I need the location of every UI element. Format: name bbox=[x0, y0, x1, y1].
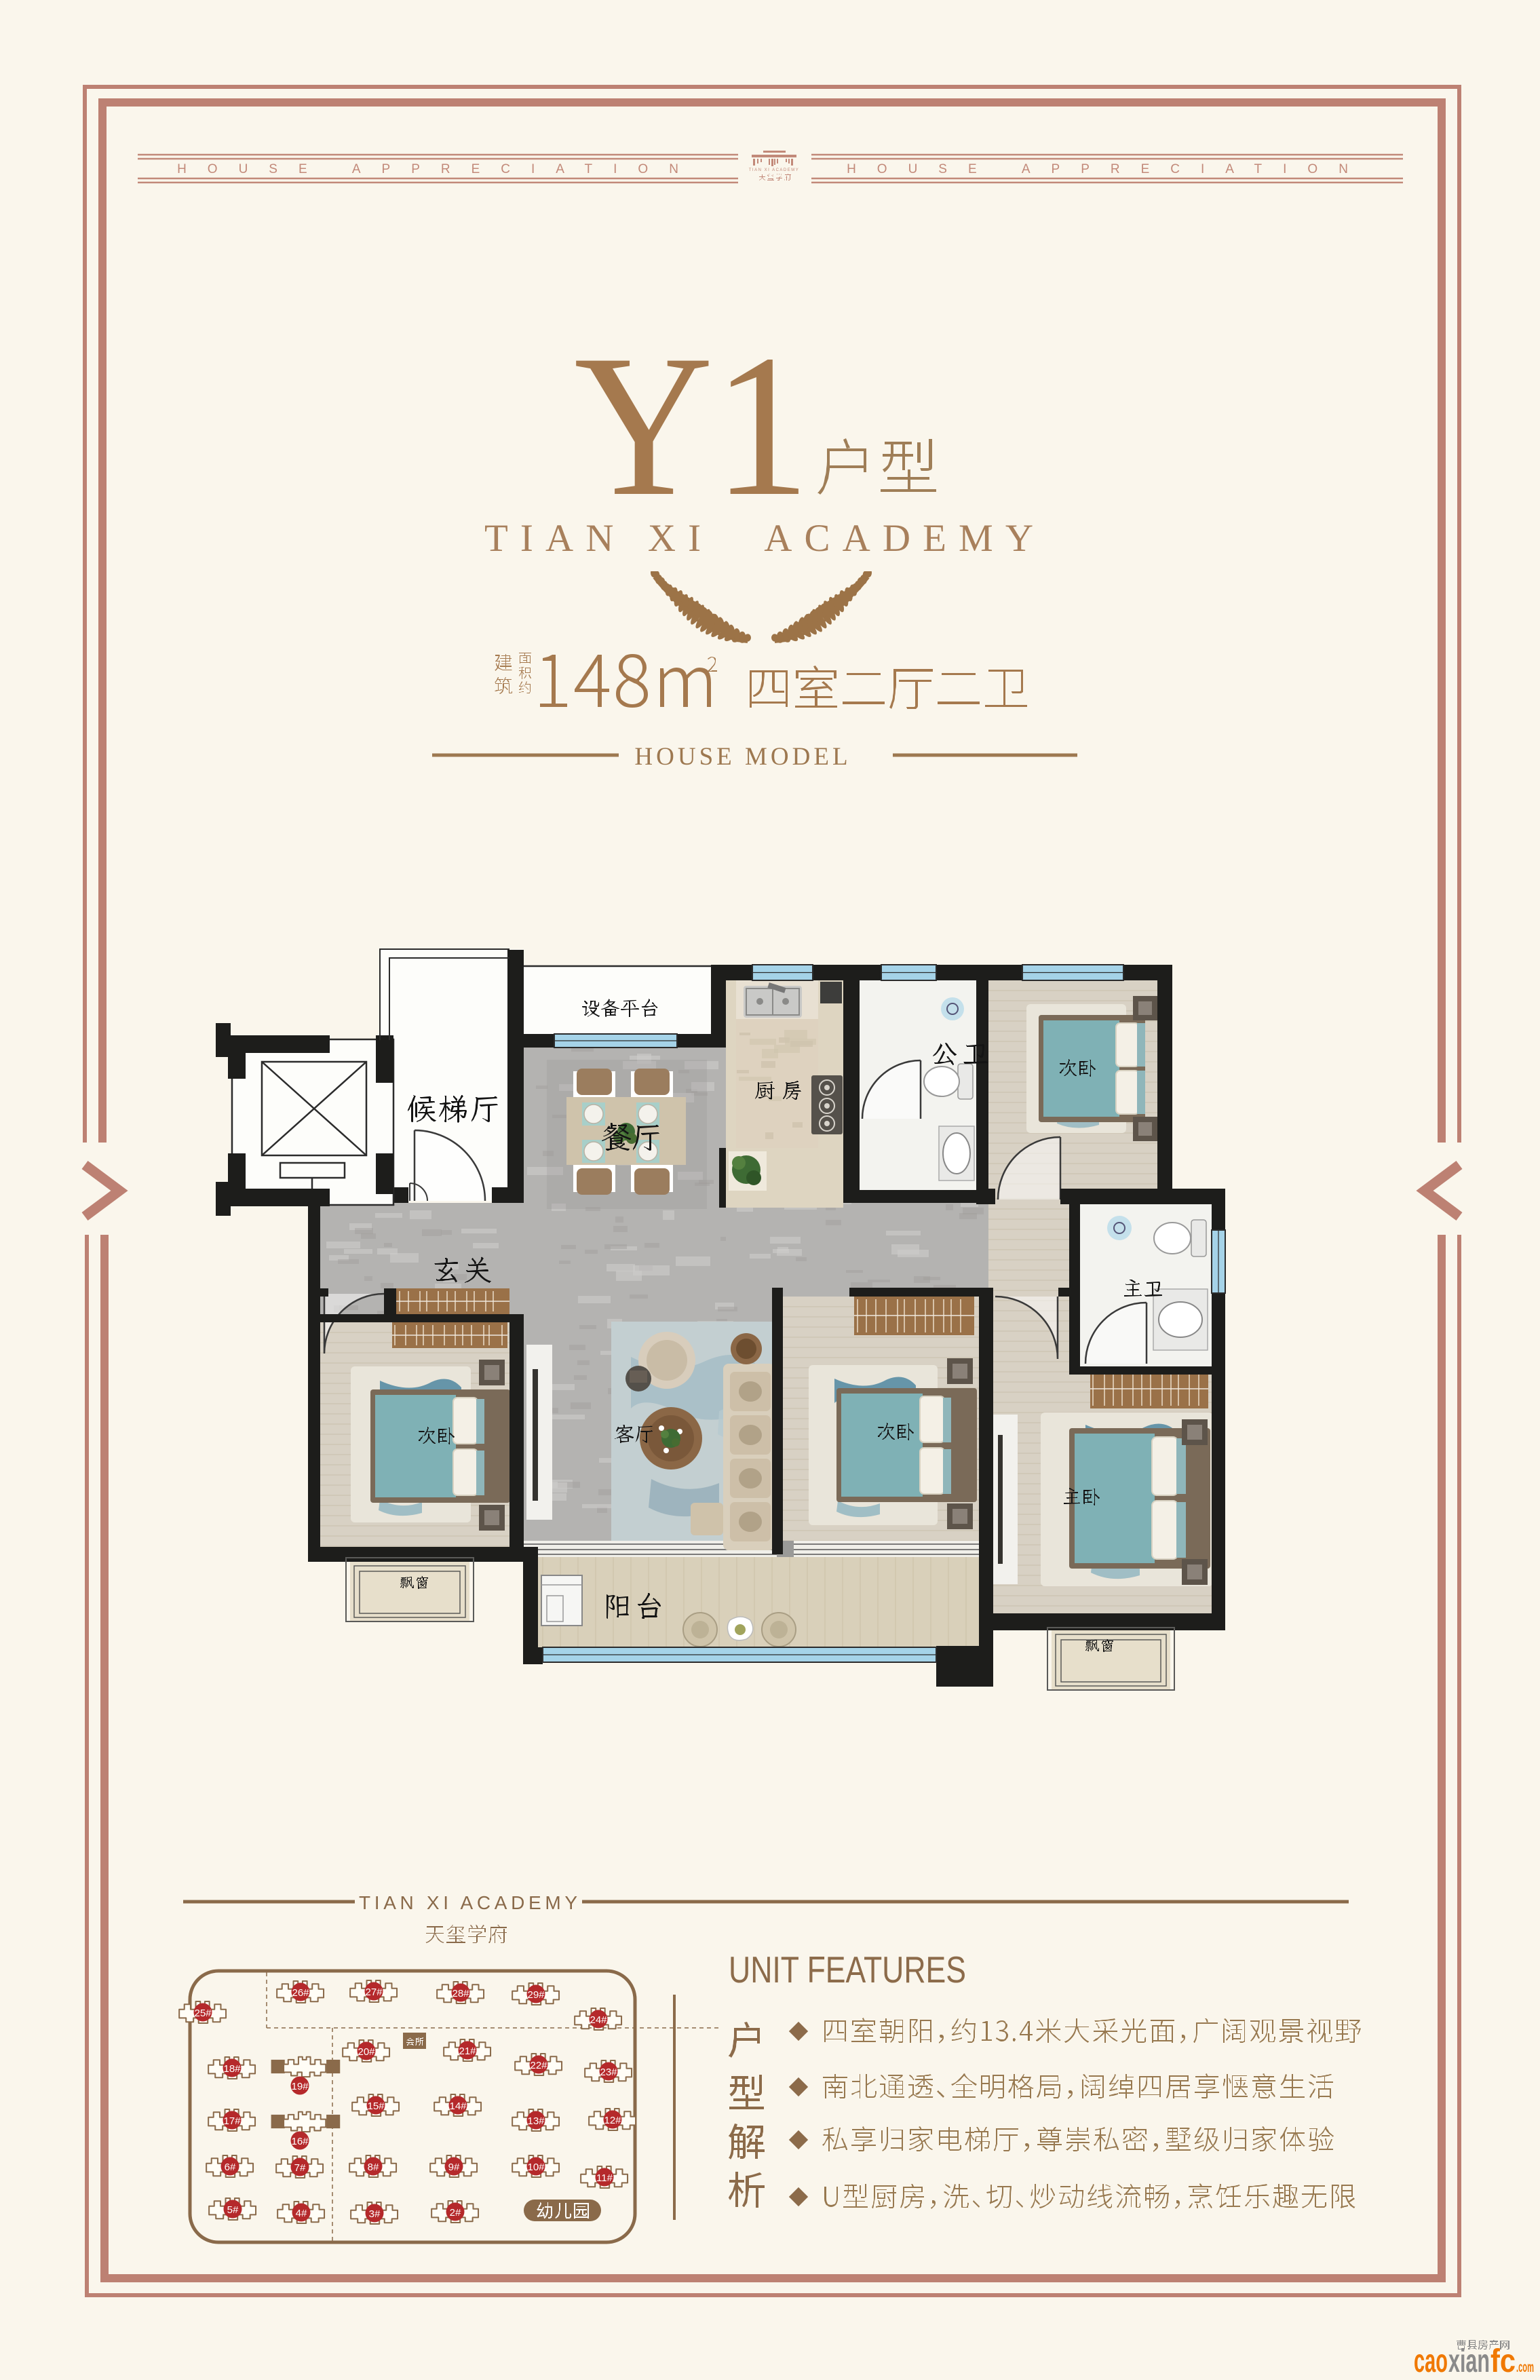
svg-text:22#: 22# bbox=[530, 2060, 547, 2071]
svg-text:3#: 3# bbox=[369, 2208, 381, 2220]
svg-text:14#: 14# bbox=[449, 2100, 467, 2112]
svg-text:8#: 8# bbox=[368, 2162, 379, 2173]
svg-text:4#: 4# bbox=[296, 2208, 307, 2219]
svg-text:20#: 20# bbox=[358, 2046, 375, 2058]
svg-text:13#: 13# bbox=[527, 2115, 545, 2127]
svg-text:15#: 15# bbox=[367, 2100, 385, 2112]
svg-text:fc: fc bbox=[1490, 2343, 1516, 2379]
svg-text:10#: 10# bbox=[527, 2162, 545, 2173]
svg-text:29#: 29# bbox=[527, 1989, 545, 2001]
svg-text:7#: 7# bbox=[294, 2162, 306, 2174]
svg-text:18#: 18# bbox=[223, 2063, 241, 2075]
svg-text:19#: 19# bbox=[291, 2081, 309, 2092]
svg-text:xian: xian bbox=[1448, 2343, 1490, 2379]
svg-text:UNIT FEATURES: UNIT FEATURES bbox=[729, 1949, 966, 1991]
svg-text:TIAN XI ACADEMY: TIAN XI ACADEMY bbox=[359, 1892, 577, 1913]
svg-text:25#: 25# bbox=[194, 2008, 212, 2019]
svg-text:5#: 5# bbox=[227, 2204, 239, 2216]
svg-text:12#: 12# bbox=[604, 2115, 621, 2126]
svg-text:cao: cao bbox=[1414, 2343, 1448, 2379]
svg-text:26#: 26# bbox=[292, 1987, 309, 1999]
svg-text:17#: 17# bbox=[223, 2115, 241, 2127]
svg-text:28#: 28# bbox=[452, 1988, 469, 1999]
svg-text:27#: 27# bbox=[365, 1986, 383, 1998]
svg-text:21#: 21# bbox=[459, 2046, 476, 2057]
svg-text:.com: .com bbox=[1516, 2360, 1534, 2375]
svg-text:24#: 24# bbox=[590, 2014, 607, 2026]
svg-text:16#: 16# bbox=[291, 2136, 309, 2147]
svg-text:6#: 6# bbox=[225, 2162, 236, 2173]
svg-text:9#: 9# bbox=[448, 2162, 460, 2173]
svg-text:23#: 23# bbox=[600, 2067, 617, 2078]
svg-text:11#: 11# bbox=[596, 2172, 613, 2184]
svg-text:2#: 2# bbox=[450, 2207, 461, 2219]
